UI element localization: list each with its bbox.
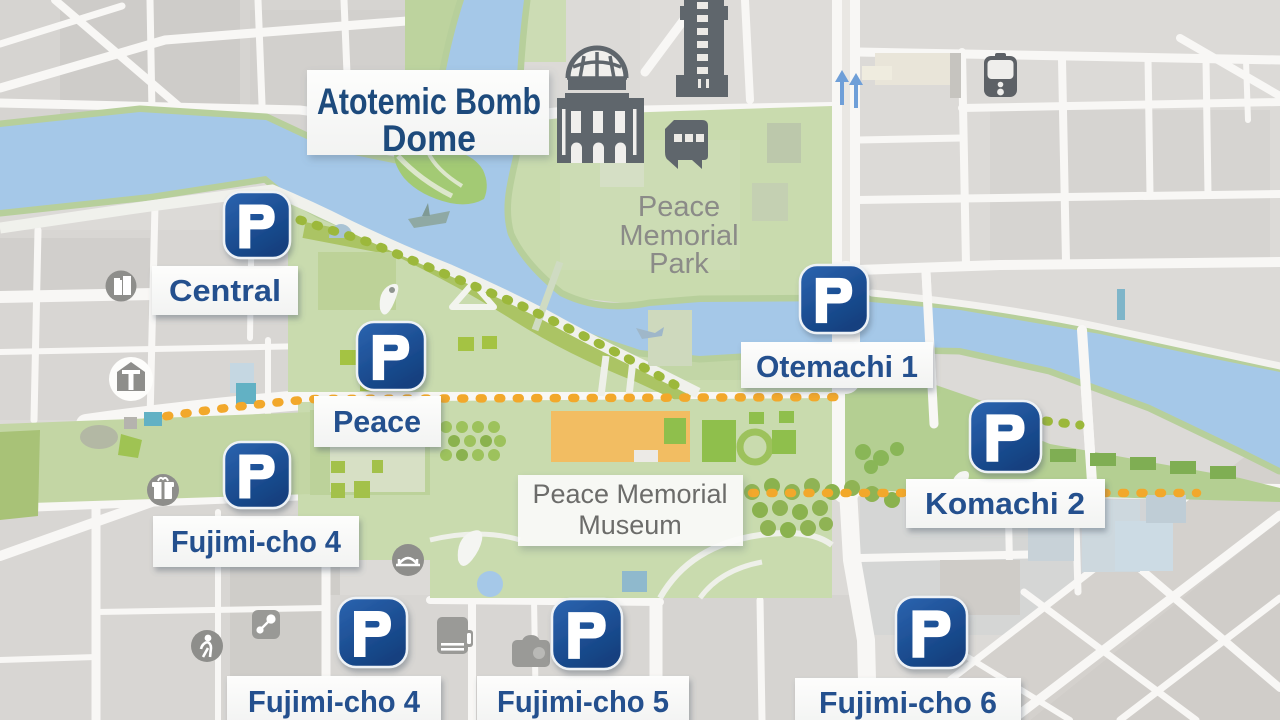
svg-text:Museum: Museum [578, 510, 682, 540]
svg-text:Komachi 2: Komachi 2 [925, 486, 1085, 521]
svg-text:Fujimi-cho 6: Fujimi-cho 6 [819, 685, 997, 720]
svg-text:Central: Central [169, 273, 281, 308]
svg-text:Park: Park [649, 248, 709, 280]
svg-text:Peace: Peace [333, 404, 421, 439]
svg-text:Atotemic Bomb: Atotemic Bomb [317, 81, 541, 122]
svg-text:Peace Memorial: Peace Memorial [532, 479, 727, 509]
svg-text:Peace: Peace [638, 191, 720, 223]
svg-text:Otemachi 1: Otemachi 1 [756, 349, 918, 384]
svg-text:Dome: Dome [382, 118, 476, 159]
svg-text:Fujimi-cho 4: Fujimi-cho 4 [248, 684, 421, 719]
svg-text:Fujimi-cho 4: Fujimi-cho 4 [171, 524, 342, 559]
svg-text:Fujimi-cho 5: Fujimi-cho 5 [497, 684, 669, 719]
